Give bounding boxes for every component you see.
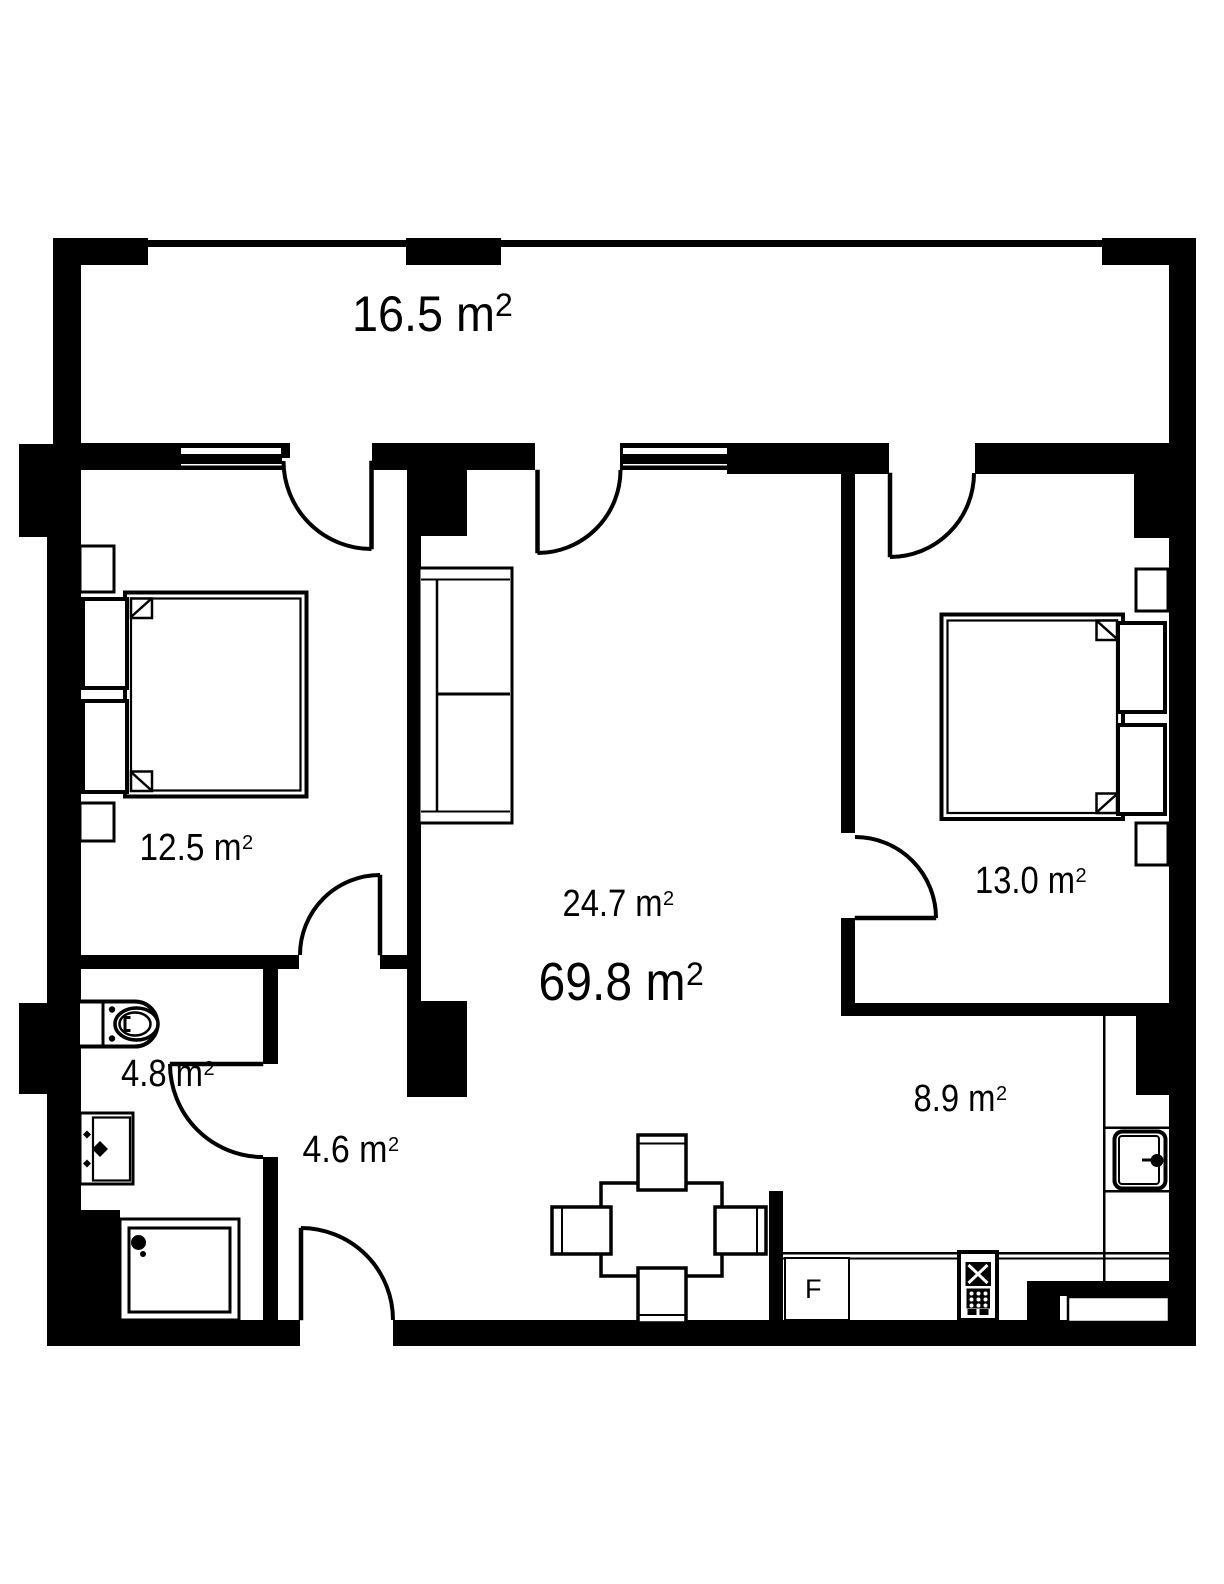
svg-text:2: 2: [242, 832, 253, 854]
svg-text:8.9 m: 8.9 m: [914, 1078, 996, 1120]
svg-text:2: 2: [996, 1083, 1007, 1105]
svg-text:13.0 m: 13.0 m: [975, 860, 1075, 902]
svg-text:69.8 m: 69.8 m: [539, 952, 686, 1012]
svg-text:24.7 m: 24.7 m: [563, 883, 663, 925]
svg-text:2: 2: [686, 956, 704, 992]
svg-text:F: F: [805, 1274, 822, 1304]
svg-text:4.8 m: 4.8 m: [121, 1053, 203, 1095]
svg-text:2: 2: [495, 287, 513, 323]
svg-text:2: 2: [204, 1058, 215, 1080]
svg-text:16.5 m: 16.5 m: [352, 286, 495, 342]
svg-text:4.6 m: 4.6 m: [303, 1129, 388, 1171]
svg-text:2: 2: [663, 888, 674, 910]
svg-text:12.5 m: 12.5 m: [140, 827, 242, 869]
svg-text:2: 2: [388, 1134, 399, 1156]
svg-text:2: 2: [1076, 865, 1087, 887]
